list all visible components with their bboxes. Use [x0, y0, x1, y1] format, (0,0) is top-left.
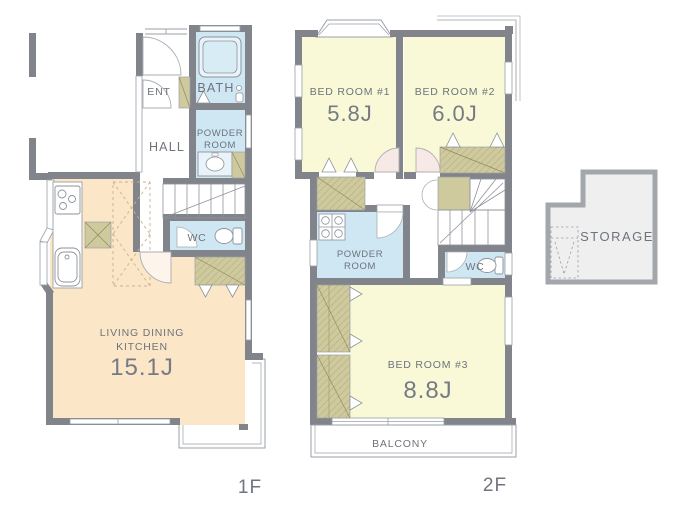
washer-icon: [319, 214, 345, 240]
label-balcony: BALCONY: [372, 438, 428, 450]
floorplan-storage: STORAGE: [548, 172, 655, 282]
label-bed3: BED ROOM #3: [388, 359, 469, 371]
label-wc-1f: WC: [187, 232, 206, 244]
label-floor-1f: 1F: [238, 477, 262, 498]
label-bed1: BED ROOM #1: [310, 86, 391, 98]
stove-icon: [55, 186, 80, 214]
label-bed3-area: 8.8J: [403, 377, 452, 404]
label-powder-1f-line1: POWDER: [197, 128, 243, 139]
sink-icon: [55, 248, 80, 286]
label-powder-2f-line2: ROOM: [344, 261, 376, 272]
washbasin-icon: [198, 152, 232, 176]
floorplan-2f: BED ROOM #1 5.8J BED ROOM #2 6.0J POWDER…: [295, 16, 520, 496]
closet-hall: [422, 177, 470, 210]
label-ldk-area: 15.1J: [110, 354, 174, 381]
label-ent: ENT: [147, 86, 170, 98]
bay-window: [316, 20, 392, 37]
entrance-porch-lines: [145, 29, 187, 34]
shoe-closet: [179, 77, 190, 108]
floorplan-canvas: ENT BATH HALL POWDER ROOM WC LIVING DINI…: [0, 0, 700, 509]
floorplan-1f: ENT BATH HALL POWDER ROOM WC LIVING DINI…: [29, 25, 265, 498]
label-bed1-area: 5.8J: [327, 101, 373, 126]
label-hall: HALL: [149, 140, 185, 154]
floorplan-drawing: ENT BATH HALL POWDER ROOM WC LIVING DINI…: [0, 0, 700, 509]
closet-bed3-upper: [317, 285, 350, 352]
label-powder-1f-line2: ROOM: [204, 140, 236, 151]
kitchen-hatch-square: [85, 222, 111, 248]
toilet-icon: [215, 228, 242, 244]
linen-wedge: [232, 152, 245, 178]
storage-outline: [548, 172, 655, 282]
closet-bed3-lower: [317, 355, 350, 418]
label-ldk-line1: LIVING DINING: [100, 327, 185, 339]
label-powder-2f-line1: POWDER: [337, 249, 383, 260]
label-bed2-area: 6.0J: [432, 101, 478, 126]
label-bed2: BED ROOM #2: [415, 86, 496, 98]
label-floor-2f: 2F: [483, 475, 507, 496]
label-bath: BATH: [197, 81, 234, 95]
bathtub-icon: [199, 37, 241, 77]
label-wc-2f: WC: [465, 261, 484, 273]
label-storage: STORAGE: [580, 229, 654, 244]
label-ldk-line2: KITCHEN: [116, 341, 168, 353]
room-wc-1f: [170, 221, 245, 250]
